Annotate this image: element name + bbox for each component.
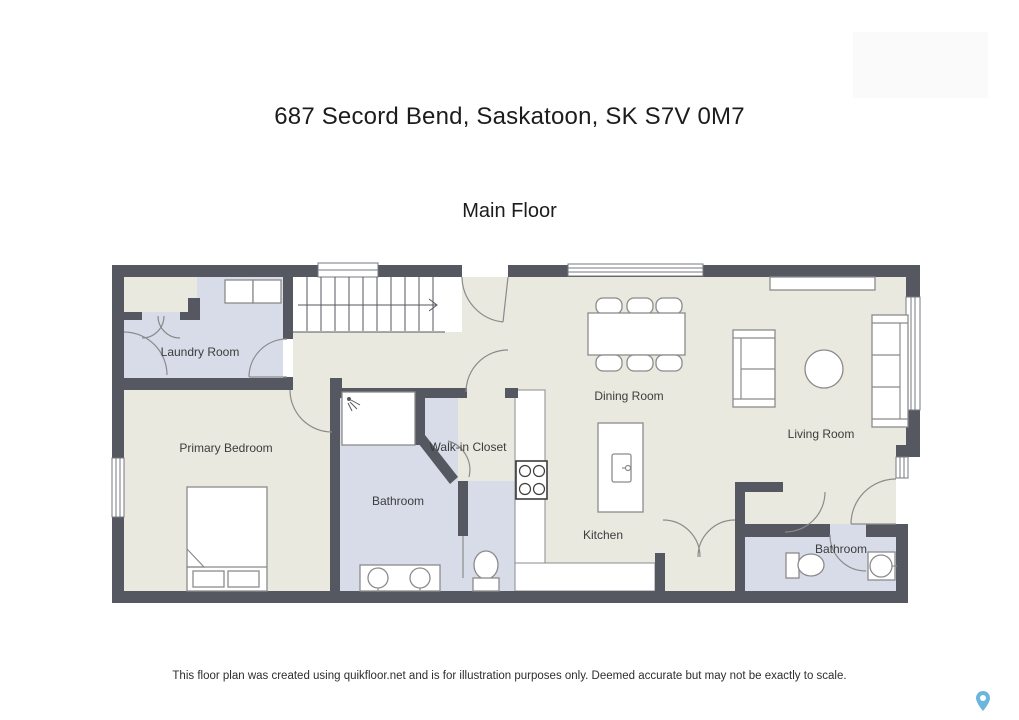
floor-plan-page: 687 Secord Bend, Saskatoon, SK S7V 0M7 M… — [0, 0, 1019, 720]
stair-landing — [445, 277, 462, 332]
floor-plan-drawing: Laundry Room Primary Bedroom Walk-in Clo… — [0, 0, 1019, 720]
bed — [187, 487, 267, 591]
bathroom-primary-label: Bathroom — [372, 494, 424, 508]
living-room-label: Living Room — [788, 427, 855, 441]
window-above-stairs — [318, 263, 378, 277]
kitchen-island — [598, 423, 643, 512]
kitchen-counter-bottom — [515, 563, 655, 591]
round-side-table — [805, 350, 843, 388]
dining-table-set — [588, 298, 685, 371]
kitchen-label: Kitchen — [583, 528, 623, 542]
shower — [342, 392, 415, 445]
map-pin-icon — [975, 690, 991, 712]
loveseat — [733, 330, 775, 407]
sofa — [872, 315, 908, 427]
primary-bedroom-label: Primary Bedroom — [179, 441, 272, 455]
walk-in-closet-label: Walk-in Closet — [430, 440, 508, 454]
window-bedroom-left — [112, 458, 124, 517]
window-entry-right — [896, 457, 908, 478]
sink-second-bathroom — [868, 552, 897, 580]
double-vanity — [360, 565, 440, 592]
dining-room-label: Dining Room — [594, 389, 663, 403]
laundry-room-label: Laundry Room — [161, 345, 240, 359]
toilet-water-closet — [473, 551, 499, 591]
toilet-second-bathroom — [786, 553, 824, 578]
bathroom-second-label: Bathroom — [815, 542, 867, 556]
entry-closet-floor — [124, 277, 197, 312]
window-dining — [568, 264, 703, 276]
washer-dryer — [225, 280, 281, 303]
stove — [516, 461, 547, 499]
media-console — [770, 277, 875, 290]
disclaimer-text: This floor plan was created using quikfl… — [0, 670, 1019, 682]
